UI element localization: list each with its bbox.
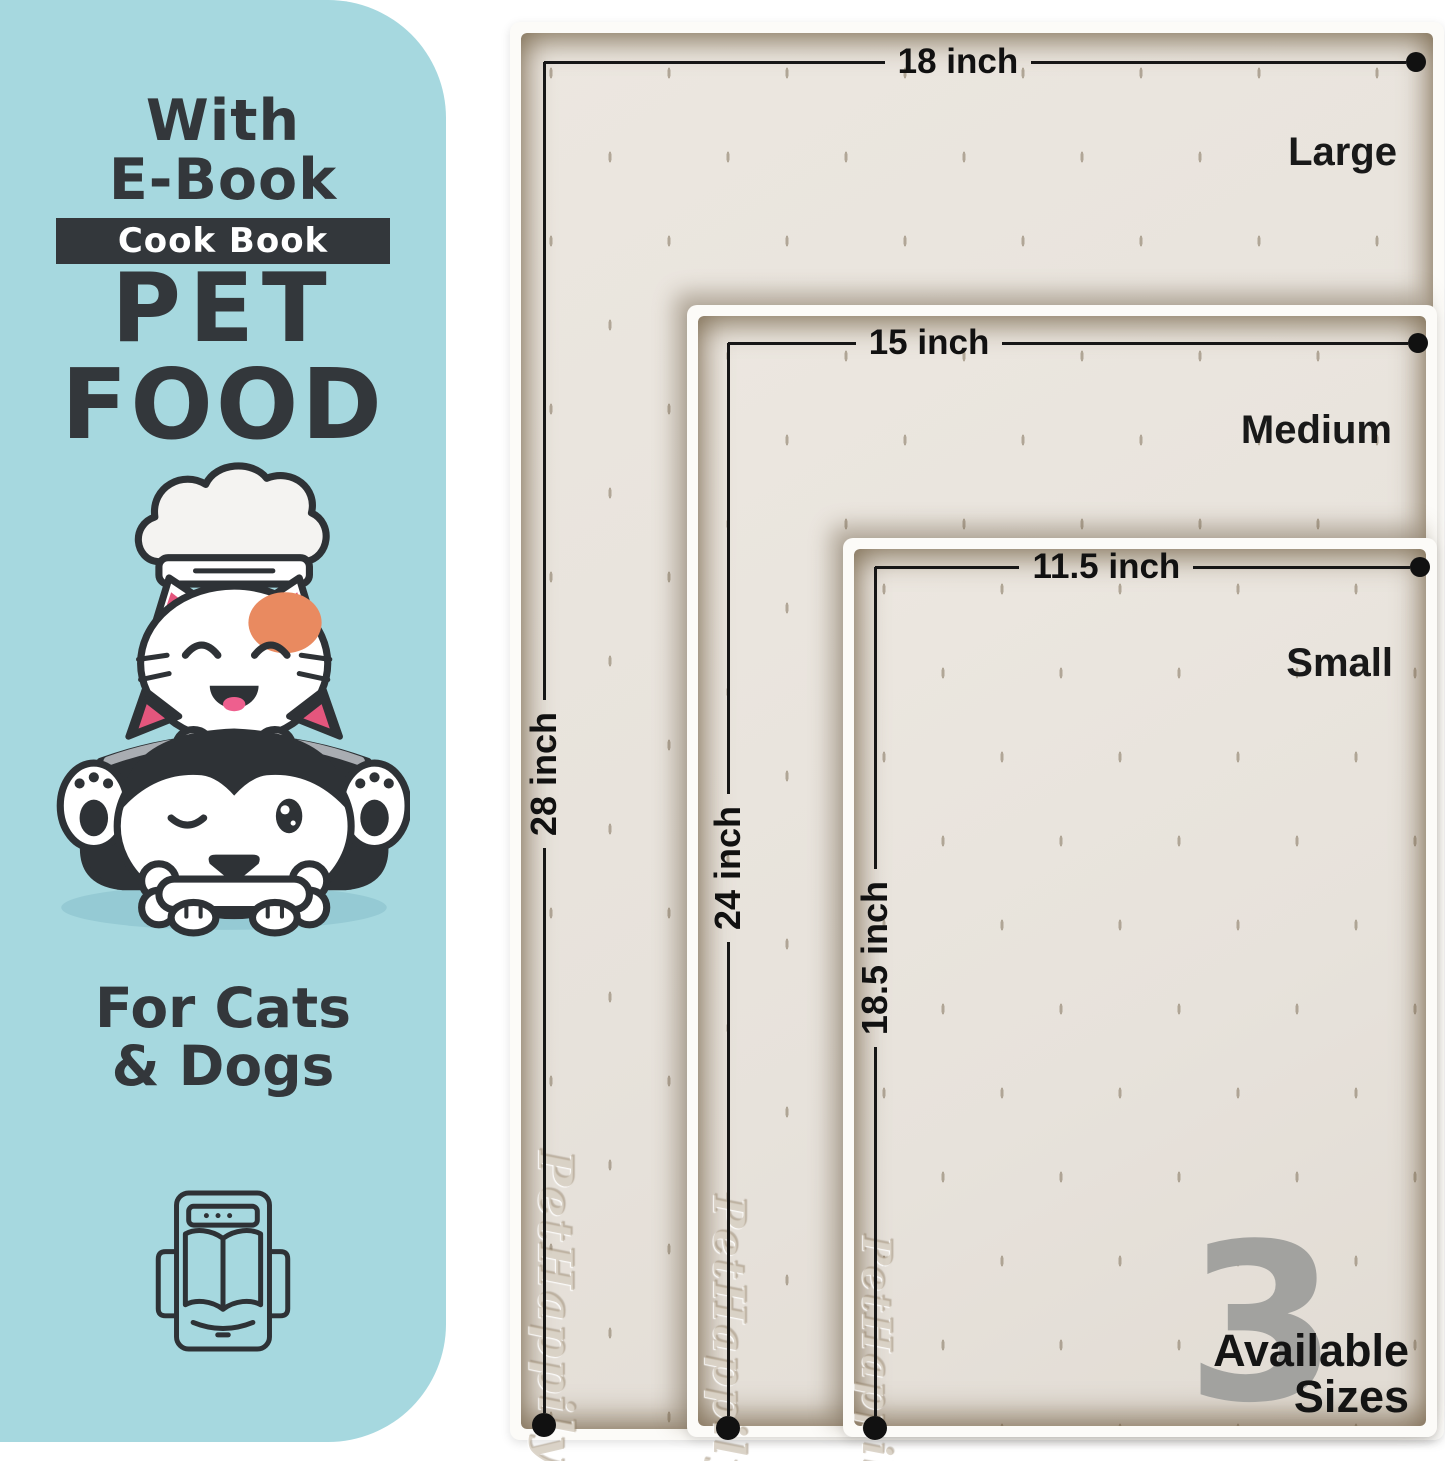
- dim-height-label-small: 18.5 inch: [854, 869, 896, 1047]
- heading-line2: E-Book: [0, 151, 446, 210]
- dimension-width-medium: 15 inch: [728, 328, 1428, 358]
- title-pet: PET: [0, 262, 446, 357]
- dim-line-segment: [874, 567, 877, 869]
- size-label-medium: Medium: [1241, 408, 1392, 453]
- dimension-height-small: 18.5 inch: [860, 567, 890, 1440]
- dim-width-label-medium: 15 inch: [856, 323, 1003, 363]
- dimension-endpoint-dot: [1408, 333, 1428, 353]
- subtitle-line1: For Cats: [0, 980, 446, 1038]
- dimension-width-large: 18 inch: [544, 47, 1426, 77]
- available-sizes-label: Available Sizes: [1213, 1328, 1409, 1420]
- dim-line-segment: [1031, 61, 1406, 64]
- dim-line-segment: [727, 942, 730, 1416]
- cat-chef-dog-illustration: [38, 460, 410, 938]
- dimension-endpoint-dot: [863, 1416, 887, 1440]
- ebook-heading: With E-Book: [0, 92, 446, 211]
- product-infographic: With E-Book Cook Book PET FOOD: [0, 0, 1445, 1461]
- dim-line-segment: [1002, 342, 1408, 345]
- dimension-endpoint-dot: [716, 1416, 740, 1440]
- dim-height-label-medium: 24 inch: [707, 794, 749, 942]
- dim-width-label-large: 18 inch: [885, 42, 1032, 82]
- dimension-height-medium: 24 inch: [713, 343, 743, 1440]
- size-label-large: Large: [1288, 130, 1397, 175]
- dim-line-segment: [543, 62, 546, 700]
- heading-line1: With: [0, 92, 446, 151]
- subtitle-for-cats-dogs: For Cats & Dogs: [0, 980, 446, 1096]
- dimension-width-small: 11.5 inch: [875, 552, 1430, 582]
- dim-line-segment: [1193, 566, 1410, 569]
- subtitle-line2: & Dogs: [0, 1038, 446, 1096]
- left-info-panel: With E-Book Cook Book PET FOOD: [0, 0, 446, 1442]
- dim-height-label-large: 28 inch: [523, 700, 565, 848]
- dimension-height-large: 28 inch: [529, 62, 559, 1437]
- dim-line-segment: [874, 1047, 877, 1416]
- dimension-endpoint-dot: [1410, 557, 1430, 577]
- dimension-endpoint-dot: [1406, 52, 1426, 72]
- dim-width-label-small: 11.5 inch: [1019, 547, 1193, 587]
- dim-line-segment: [728, 342, 856, 345]
- available-sizes-line2: Sizes: [1213, 1374, 1409, 1420]
- ebook-icon: [140, 1168, 306, 1374]
- title-food: FOOD: [0, 356, 446, 453]
- available-sizes-line1: Available: [1213, 1328, 1409, 1374]
- dim-line-segment: [544, 61, 885, 64]
- dim-line-segment: [875, 566, 1019, 569]
- dimension-endpoint-dot: [532, 1413, 556, 1437]
- dim-line-segment: [543, 848, 546, 1413]
- size-label-small: Small: [1286, 641, 1393, 686]
- dim-line-segment: [727, 343, 730, 794]
